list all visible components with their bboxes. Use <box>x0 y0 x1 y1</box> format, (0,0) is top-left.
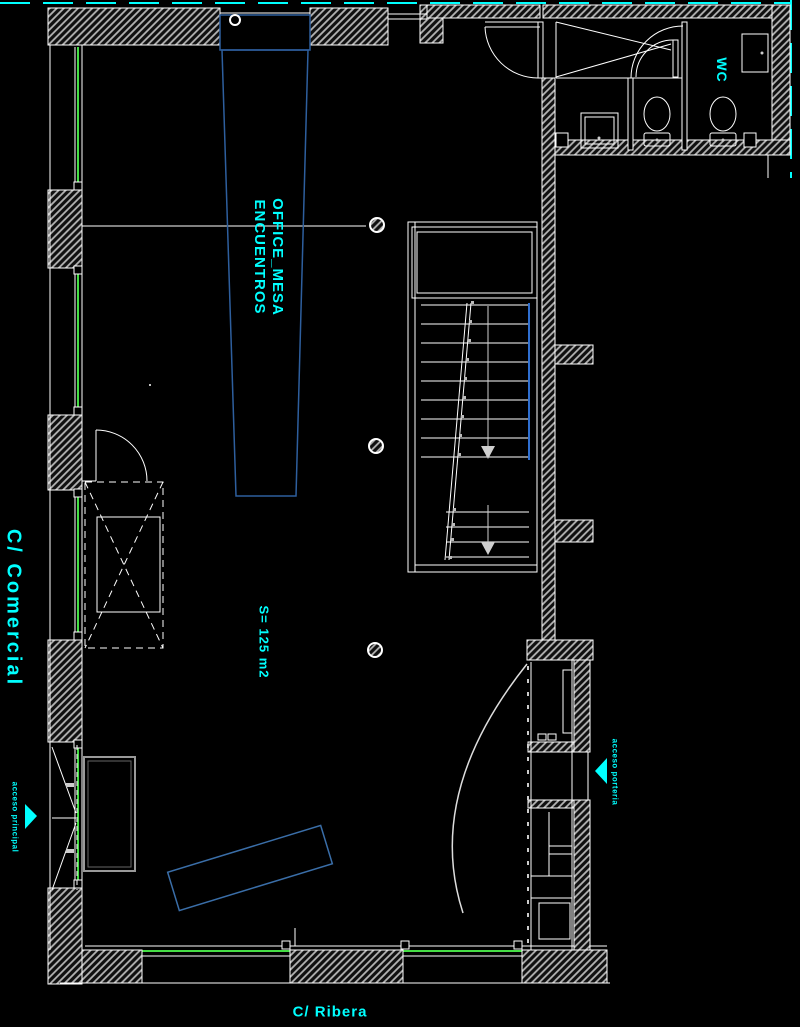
glass-facade <box>75 47 607 956</box>
column-icon <box>370 218 384 232</box>
interior-door <box>96 430 147 481</box>
reception-desk <box>84 757 135 871</box>
toilet-icon <box>644 97 670 146</box>
outer-walls <box>48 5 790 984</box>
office-table-label-line1: OFFICE_MESA <box>269 198 286 316</box>
wall-cabinet-icon <box>742 34 768 72</box>
wc-label: WC <box>714 57 730 82</box>
wall-lines <box>50 13 768 983</box>
stairs <box>408 222 537 572</box>
tilted-desk <box>168 825 333 910</box>
office-table-label-line2: ENCUENTROS <box>251 199 268 314</box>
columns <box>368 218 384 657</box>
elevator-projection <box>85 482 163 648</box>
entrance-door <box>52 745 77 890</box>
street-label-ribera: C/ Ribera <box>293 1004 368 1021</box>
area-label: S= 125 m2 <box>257 606 272 679</box>
street-label-comercial: C/ Comercial <box>2 529 25 687</box>
wc-entrance-door <box>485 22 543 78</box>
access-porter-arrow-icon <box>595 758 607 784</box>
column-icon <box>369 439 383 453</box>
toilet-icon <box>710 97 736 146</box>
access-principal-arrow-icon <box>25 804 37 829</box>
column-icon <box>230 15 240 25</box>
column-icon <box>368 643 382 657</box>
plan-drawing <box>0 0 800 1027</box>
floor-plan: C/ Comercial C/ Ribera WC OFFICE_MESA EN… <box>0 0 800 1027</box>
access-porter-label: acceso porteria <box>611 739 620 806</box>
office-table-label: OFFICE_MESA ENCUENTROS <box>250 198 286 316</box>
wc-suite <box>556 22 768 150</box>
access-principal-label: acceso principal <box>11 782 20 853</box>
large-door-arc <box>452 664 527 913</box>
